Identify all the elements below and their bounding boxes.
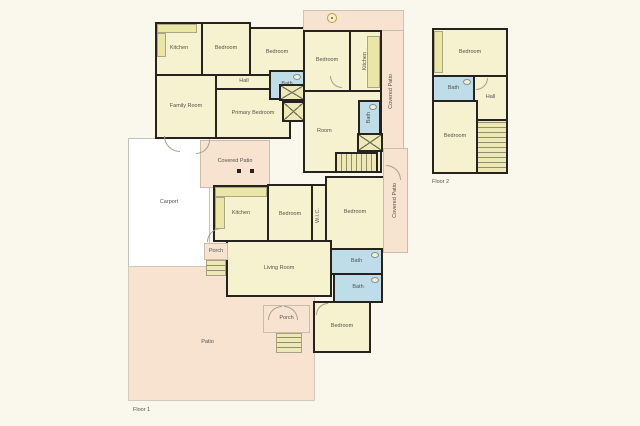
kitchen-counter <box>367 36 380 88</box>
covered-patio-bottom: Covered Patio <box>200 140 270 188</box>
room-bath-annex: Bath <box>358 100 381 135</box>
room-bedroom-f2-top: Bedroom <box>432 28 508 77</box>
room-label: Porch <box>209 249 223 255</box>
room-label: Covered Patio <box>201 159 269 165</box>
room-bedroom-annex: Bedroom <box>303 30 351 92</box>
building-main-top: Kitchen Bedroom Bedroom Hall Family Room… <box>155 22 305 139</box>
kitchen-counter <box>157 24 197 33</box>
patio-post-icon <box>250 169 254 173</box>
room-label: Bedroom <box>279 212 301 218</box>
room-label: Bedroom <box>316 58 338 64</box>
room-label: Bedroom <box>459 50 481 56</box>
kitchen-counter <box>157 33 166 57</box>
room-label: Room <box>317 129 332 135</box>
room-label: Bath <box>351 259 362 265</box>
carport-area: Carport <box>128 138 210 268</box>
room-family-room: Family Room <box>155 74 217 139</box>
outdoor-steps-icon <box>276 333 302 353</box>
room-label: Bedroom <box>444 134 466 140</box>
covered-patio-annex: Covered Patio <box>380 30 404 152</box>
patio-post-icon <box>237 169 241 173</box>
ceiling-fan-icon <box>327 13 337 23</box>
porch-side: Porch <box>204 243 228 260</box>
room-label: Bedroom <box>266 50 288 56</box>
room-label: Bedroom <box>344 210 366 216</box>
room-bedroom-f2-bottom: Bedroom <box>432 100 478 174</box>
covered-patio-side: Covered Patio <box>383 148 408 253</box>
room-living-room: Living Room <box>226 240 332 297</box>
building-main-bottom: Covered Patio Kitchen Bedroom W.I.C. Bed… <box>200 140 412 355</box>
closet-x-icon <box>282 101 305 122</box>
building-floor2: Bedroom Bath Hall Bedroom <box>432 28 508 174</box>
floor2-caption: Floor 2 <box>432 179 449 185</box>
carport-label: Carport <box>160 200 178 206</box>
room-bedroom-bottom-left: Bedroom <box>267 184 313 246</box>
room-label: Bath <box>367 112 373 123</box>
kitchen-counter <box>215 187 267 197</box>
room-label: Living Room <box>264 266 295 272</box>
room-bedroom-1: Bedroom <box>201 22 251 76</box>
patio-band-top <box>303 10 404 32</box>
room-label: Bath <box>352 285 363 291</box>
room-label: Bedroom <box>215 46 237 52</box>
room-label: Bedroom <box>331 324 353 330</box>
room-bath-f2: Bath <box>432 75 475 102</box>
room-label: Kitchen <box>232 211 250 217</box>
closet-x-icon <box>279 84 305 101</box>
room-label: W.I.C. <box>316 208 322 223</box>
room-label: Kitchen <box>170 46 188 52</box>
room-bath-lower: Bath <box>333 273 383 303</box>
kitchen-counter <box>215 197 225 229</box>
closet-strip <box>434 31 443 73</box>
floor1-caption: Floor 1 <box>133 407 150 413</box>
room-label: Hall <box>239 79 248 85</box>
room-bedroom-bottom-right: Bedroom <box>325 176 385 250</box>
staircase-icon <box>476 119 508 174</box>
room-label: Family Room <box>170 104 202 110</box>
outdoor-steps-icon <box>206 260 226 276</box>
room-label: Hall <box>486 95 495 101</box>
room-label: Covered Patio <box>393 183 399 218</box>
room-label: Covered Patio <box>389 74 395 109</box>
room-label: Bath <box>448 86 459 92</box>
room-label: Primary Bedroom <box>232 111 275 117</box>
floor-plan-canvas: Carport Patio Kitchen Bedroom Bedroom Ha… <box>0 0 640 426</box>
room-bath-upper: Bath <box>330 248 383 275</box>
